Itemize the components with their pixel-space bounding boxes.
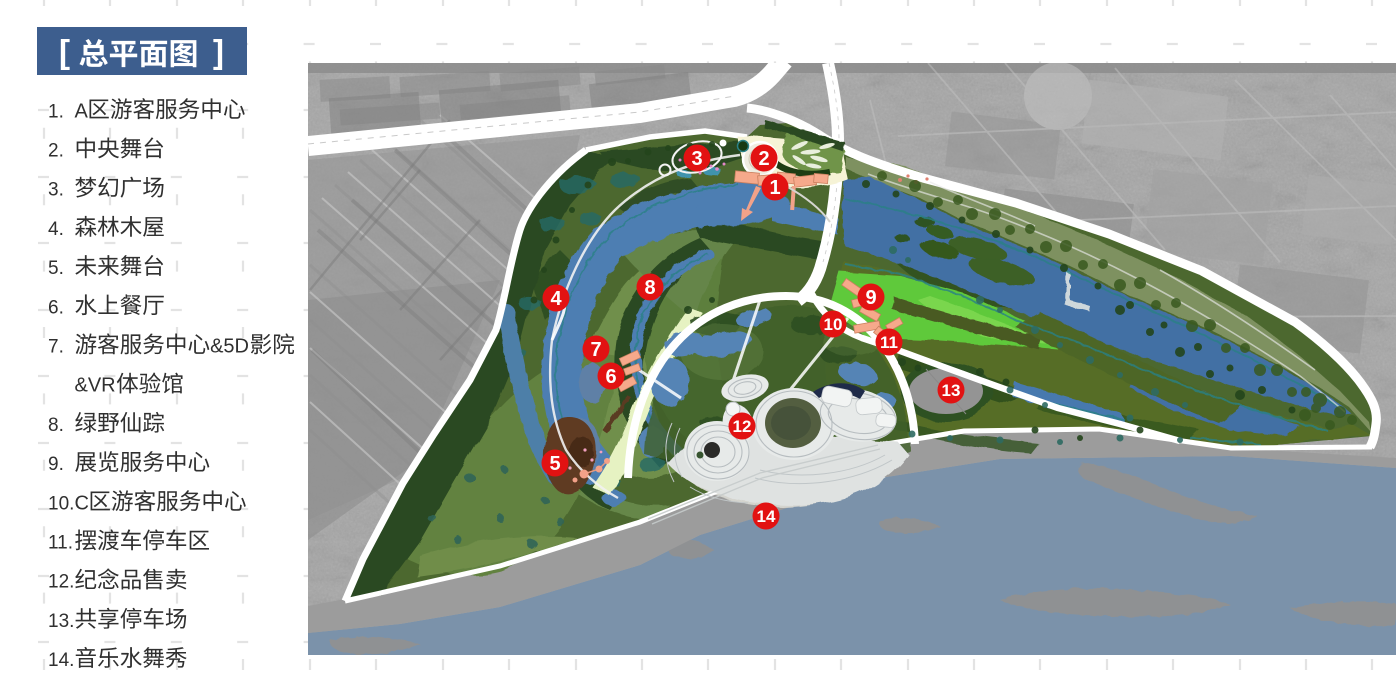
svg-text:&VR: &VR [75,375,116,397]
svg-text:&5D: &5D [210,336,249,358]
svg-text:13.: 13. [48,611,74,632]
svg-text:9.: 9. [48,454,64,475]
svg-text:3: 3 [691,148,702,170]
svg-text:C: C [75,492,89,514]
svg-text:6.: 6. [48,297,64,318]
svg-text:A: A [75,100,89,122]
svg-text:10: 10 [824,315,843,334]
svg-text:12: 12 [733,417,752,436]
svg-text:13: 13 [942,381,961,400]
svg-text:14.: 14. [48,650,74,671]
svg-text:7: 7 [590,339,601,361]
svg-text:6: 6 [605,366,616,388]
svg-text:12.: 12. [48,572,74,593]
svg-text:1.: 1. [48,101,64,122]
svg-text:[: [ [59,33,70,70]
svg-text:11.: 11. [48,533,73,554]
svg-text:14: 14 [757,507,776,526]
svg-text:5: 5 [549,453,560,475]
svg-text:9: 9 [865,287,876,309]
svg-text:7.: 7. [48,337,64,358]
svg-text:5.: 5. [48,258,64,279]
svg-text:8: 8 [644,277,655,299]
svg-text:11: 11 [880,333,898,352]
svg-text:10.: 10. [48,493,74,514]
svg-text:4.: 4. [48,219,64,240]
svg-text:2: 2 [758,148,769,170]
svg-text:3.: 3. [48,180,64,201]
svg-text:1: 1 [769,177,780,199]
svg-text:8.: 8. [48,415,64,436]
svg-text:]: ] [213,33,224,70]
svg-text:2.: 2. [48,141,64,162]
svg-text:4: 4 [550,288,562,310]
